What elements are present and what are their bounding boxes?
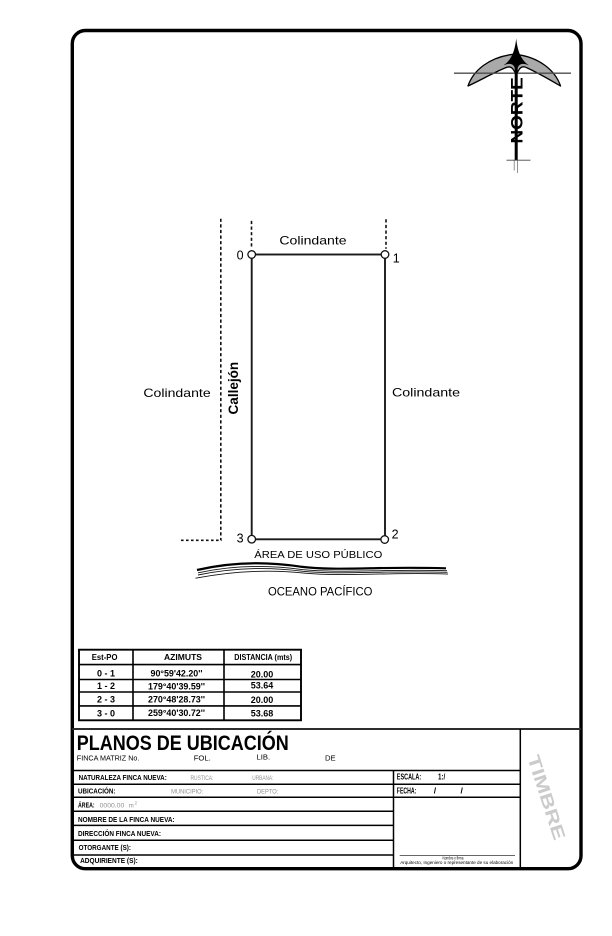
svg-text:DIRECCIÓN FINCA NUEVA:: DIRECCIÓN FINCA NUEVA:	[78, 829, 161, 838]
svg-text:LIB.: LIB.	[257, 753, 271, 762]
svg-text:270°48'28.73'': 270°48'28.73''	[148, 695, 205, 705]
svg-text:1: 1	[393, 252, 400, 266]
svg-text:Callejón: Callejón	[226, 362, 241, 415]
svg-text:URBANA:: URBANA:	[252, 776, 273, 782]
svg-text:AZIMUTS: AZIMUTS	[164, 652, 202, 662]
svg-text:DE: DE	[325, 754, 336, 763]
svg-text:PLANOS DE UBICACIÓN: PLANOS DE UBICACIÓN	[77, 730, 289, 755]
svg-text:53.68: 53.68	[251, 708, 274, 718]
svg-text:2: 2	[392, 528, 399, 542]
svg-text:1:/: 1:/	[438, 772, 446, 782]
svg-text:DEPTO:: DEPTO:	[257, 789, 279, 795]
svg-text:3 - 0: 3 - 0	[97, 708, 115, 718]
svg-text:Arquitecto, Ingeniero o repres: Arquitecto, Ingeniero o representante de…	[400, 860, 513, 866]
svg-text:Colindante: Colindante	[392, 386, 460, 400]
svg-text:FECHA:: FECHA:	[397, 785, 417, 795]
svg-text:Est-PO: Est-PO	[92, 652, 118, 662]
svg-text:MUNICIPIO:: MUNICIPIO:	[171, 789, 204, 795]
svg-text:ESCALA:: ESCALA:	[397, 772, 421, 782]
svg-text:53.64: 53.64	[251, 680, 274, 690]
svg-text:FOL.: FOL.	[194, 754, 211, 763]
svg-text:Colindante: Colindante	[279, 234, 347, 248]
svg-text:NOMBRE DE LA FINCA NUEVA:: NOMBRE DE LA FINCA NUEVA:	[78, 815, 175, 824]
svg-text:NATURALEZA FINCA NUEVA:: NATURALEZA FINCA NUEVA:	[79, 773, 167, 782]
svg-text:ÁREA:: ÁREA:	[78, 800, 95, 809]
svg-text:m: m	[129, 803, 134, 809]
svg-text:20.00: 20.00	[251, 695, 274, 705]
svg-text:NORTE: NORTE	[508, 77, 526, 143]
svg-text:179°40'39.59'': 179°40'39.59''	[148, 681, 205, 691]
svg-text:0 - 1: 0 - 1	[97, 668, 115, 678]
svg-text:UBICACIÓN:: UBICACIÓN:	[78, 787, 116, 796]
svg-text:OCEANO PACÍFICO: OCEANO PACÍFICO	[268, 584, 373, 599]
svg-text:0000.00: 0000.00	[100, 803, 125, 809]
svg-text:1 - 2: 1 - 2	[97, 681, 115, 691]
svg-text:ADQUIRIENTE (S):: ADQUIRIENTE (S):	[80, 856, 138, 865]
svg-text:2 - 3: 2 - 3	[97, 695, 115, 705]
svg-text:Colindante: Colindante	[143, 386, 211, 400]
svg-text:259°40'30.72'': 259°40'30.72''	[148, 708, 205, 718]
svg-text:0: 0	[237, 249, 244, 263]
svg-text:Nombre y firma: Nombre y firma	[443, 856, 464, 861]
svg-text:3: 3	[237, 531, 244, 545]
svg-text:FINCA MATRIZ No.: FINCA MATRIZ No.	[77, 754, 140, 763]
svg-text:OTORGANTE (S):: OTORGANTE (S):	[79, 843, 131, 852]
svg-text:20.00: 20.00	[251, 670, 274, 680]
svg-text:90°59'42.20'': 90°59'42.20''	[151, 669, 203, 679]
svg-text:RUSTICA:: RUSTICA:	[191, 776, 214, 782]
svg-text:DISTANCIA (mts): DISTANCIA (mts)	[234, 652, 292, 662]
svg-text:ÁREA DE USO PÚBLICO: ÁREA DE USO PÚBLICO	[254, 548, 382, 561]
